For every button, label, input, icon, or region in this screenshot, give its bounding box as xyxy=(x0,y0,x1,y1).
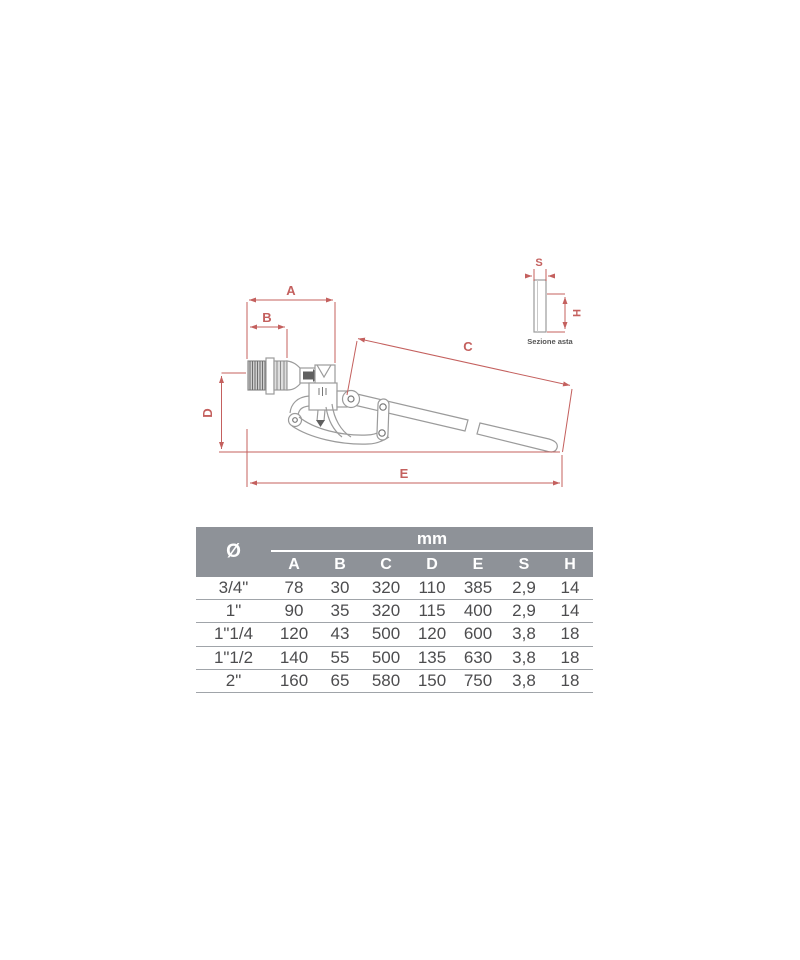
cell-s: 2,9 xyxy=(501,601,547,621)
cell-b: 30 xyxy=(317,578,363,598)
product-dimensions-sheet: { "diagram": { "labels": { "A": "A", "B"… xyxy=(0,0,800,960)
column-header-h: H xyxy=(547,556,593,574)
column-header-d: D xyxy=(409,556,455,574)
dim-label-e: E xyxy=(400,466,409,481)
cell-s: 3,8 xyxy=(501,624,547,644)
cell-h: 14 xyxy=(547,578,593,598)
cell-e: 400 xyxy=(455,601,501,621)
cell-a: 78 xyxy=(271,578,317,598)
unit-header: mm xyxy=(271,527,593,552)
column-header-s: S xyxy=(501,556,547,574)
cell-c: 320 xyxy=(363,578,409,598)
cell-b: 35 xyxy=(317,601,363,621)
cell-e: 600 xyxy=(455,624,501,644)
cell-c: 580 xyxy=(363,671,409,691)
column-headers-row: A B C D E S H xyxy=(271,552,593,577)
cell-size: 1" xyxy=(196,601,271,621)
table-row: 3/4" 78 30 320 110 385 2,9 14 xyxy=(196,577,593,600)
cell-size: 1"1/2 xyxy=(196,648,271,668)
table-row: 2" 160 65 580 150 750 3,8 18 xyxy=(196,670,593,693)
cell-d: 150 xyxy=(409,671,455,691)
dimensions-table: Ø mm A B C D E S H 3/4" 78 30 320 110 38… xyxy=(196,527,593,693)
cell-e: 385 xyxy=(455,578,501,598)
cell-h: 18 xyxy=(547,671,593,691)
cell-b: 55 xyxy=(317,648,363,668)
dim-label-d: D xyxy=(200,408,215,417)
cell-d: 110 xyxy=(409,578,455,598)
cell-size: 1"1/4 xyxy=(196,624,271,644)
cell-s: 3,8 xyxy=(501,671,547,691)
dim-label-b: B xyxy=(262,310,271,325)
cell-s: 2,9 xyxy=(501,578,547,598)
column-header-a: A xyxy=(271,556,317,574)
cell-a: 140 xyxy=(271,648,317,668)
cell-e: 750 xyxy=(455,671,501,691)
cell-a: 160 xyxy=(271,671,317,691)
mm-header-area: mm A B C D E S H xyxy=(271,527,593,577)
dim-label-h: H xyxy=(570,309,582,317)
cell-size: 3/4" xyxy=(196,578,271,598)
cell-d: 120 xyxy=(409,624,455,644)
cell-d: 135 xyxy=(409,648,455,668)
cell-b: 43 xyxy=(317,624,363,644)
table-row: 1" 90 35 320 115 400 2,9 14 xyxy=(196,600,593,623)
column-header-b: B xyxy=(317,556,363,574)
cell-size: 2" xyxy=(196,671,271,691)
dim-label-c: C xyxy=(463,339,473,354)
dim-label-a: A xyxy=(286,283,296,298)
cell-c: 500 xyxy=(363,648,409,668)
cell-a: 90 xyxy=(271,601,317,621)
cell-a: 120 xyxy=(271,624,317,644)
cell-c: 500 xyxy=(363,624,409,644)
dim-label-s: S xyxy=(535,257,542,269)
diameter-column-header: Ø xyxy=(196,527,271,577)
section-caption: Sezione asta xyxy=(527,337,573,346)
cell-s: 3,8 xyxy=(501,648,547,668)
cell-h: 14 xyxy=(547,601,593,621)
cell-e: 630 xyxy=(455,648,501,668)
valve-body-drawing xyxy=(248,280,557,452)
cell-h: 18 xyxy=(547,648,593,668)
table-row: 1"1/4 120 43 500 120 600 3,8 18 xyxy=(196,623,593,646)
technical-drawing-float-valve: A B C D E S H Sezione asta xyxy=(190,248,610,500)
column-header-e: E xyxy=(455,556,501,574)
cell-b: 65 xyxy=(317,671,363,691)
cell-c: 320 xyxy=(363,601,409,621)
cell-d: 115 xyxy=(409,601,455,621)
column-header-c: C xyxy=(363,556,409,574)
table-header: Ø mm A B C D E S H xyxy=(196,527,593,577)
page: A B C D E S H Sezione asta Ø mm A B C D … xyxy=(0,0,800,960)
table-row: 1"1/2 140 55 500 135 630 3,8 18 xyxy=(196,647,593,670)
cell-h: 18 xyxy=(547,624,593,644)
